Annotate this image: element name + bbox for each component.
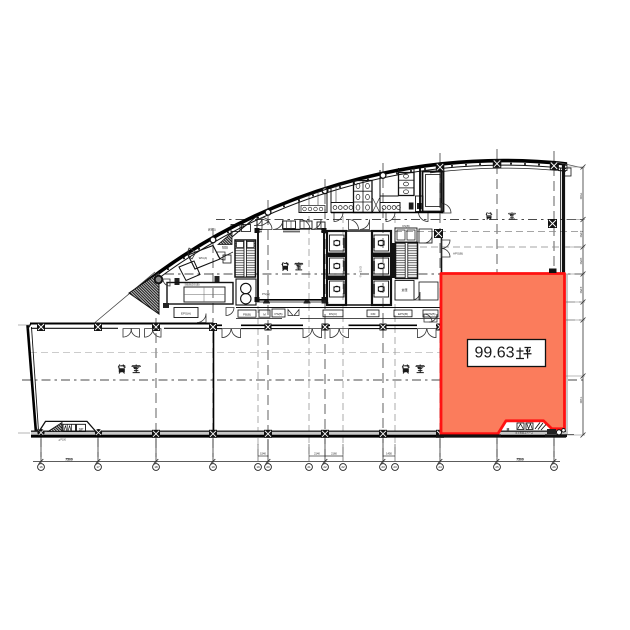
svg-text:22: 22 xyxy=(323,465,327,469)
svg-text:99.63: 99.63 xyxy=(475,345,515,362)
svg-text:EPS(B): EPS(B) xyxy=(398,312,408,316)
svg-text:3050: 3050 xyxy=(579,258,583,265)
svg-text:20: 20 xyxy=(266,465,270,469)
svg-text:1540: 1540 xyxy=(260,452,266,456)
svg-text:WC(A): WC(A) xyxy=(199,256,207,260)
svg-text:SP: SP xyxy=(79,427,84,431)
svg-text:25: 25 xyxy=(495,465,499,469)
svg-text:倉庫: 倉庫 xyxy=(401,287,407,292)
svg-text:2160: 2160 xyxy=(331,452,337,456)
svg-text:EVホール: EVホール xyxy=(359,266,363,278)
svg-text:DM: DM xyxy=(371,312,376,316)
svg-text:17: 17 xyxy=(96,465,100,469)
svg-text:SB(B)DS(B): SB(B)DS(B) xyxy=(184,282,199,286)
svg-text:23: 23 xyxy=(381,465,385,469)
svg-text:PS(A): PS(A) xyxy=(262,292,270,296)
svg-text:▲P100: ▲P100 xyxy=(58,438,67,441)
svg-text:M: M xyxy=(507,428,510,432)
svg-text:18: 18 xyxy=(154,465,158,469)
svg-text:1450: 1450 xyxy=(386,452,392,456)
svg-text:23: 23 xyxy=(393,465,397,469)
svg-text:24: 24 xyxy=(438,465,442,469)
svg-text:PS(B): PS(B) xyxy=(274,312,282,316)
svg-text:21: 21 xyxy=(307,465,311,469)
svg-text:2140: 2140 xyxy=(314,452,320,456)
svg-text:22: 22 xyxy=(341,465,345,469)
svg-text:7500: 7500 xyxy=(65,458,73,462)
svg-text:階段: 階段 xyxy=(222,245,228,250)
svg-text:倉庫(1): 倉庫(1) xyxy=(208,228,216,232)
svg-text:PB(B): PB(B) xyxy=(243,312,251,316)
svg-text:7300: 7300 xyxy=(579,397,583,404)
svg-text:DS(B): DS(B) xyxy=(402,224,409,228)
svg-text:16: 16 xyxy=(39,465,43,469)
svg-text:7500: 7500 xyxy=(579,193,583,200)
svg-text:2450: 2450 xyxy=(579,287,583,294)
svg-text:APS(B): APS(B) xyxy=(453,252,463,256)
svg-text:7500: 7500 xyxy=(516,458,524,462)
svg-text:19: 19 xyxy=(256,465,260,469)
svg-text:19: 19 xyxy=(211,465,215,469)
svg-text:EPS(A): EPS(A) xyxy=(181,312,191,316)
svg-text:26: 26 xyxy=(552,465,556,469)
svg-text:DS(C): DS(C) xyxy=(329,312,337,316)
svg-text:2450: 2450 xyxy=(579,231,583,238)
